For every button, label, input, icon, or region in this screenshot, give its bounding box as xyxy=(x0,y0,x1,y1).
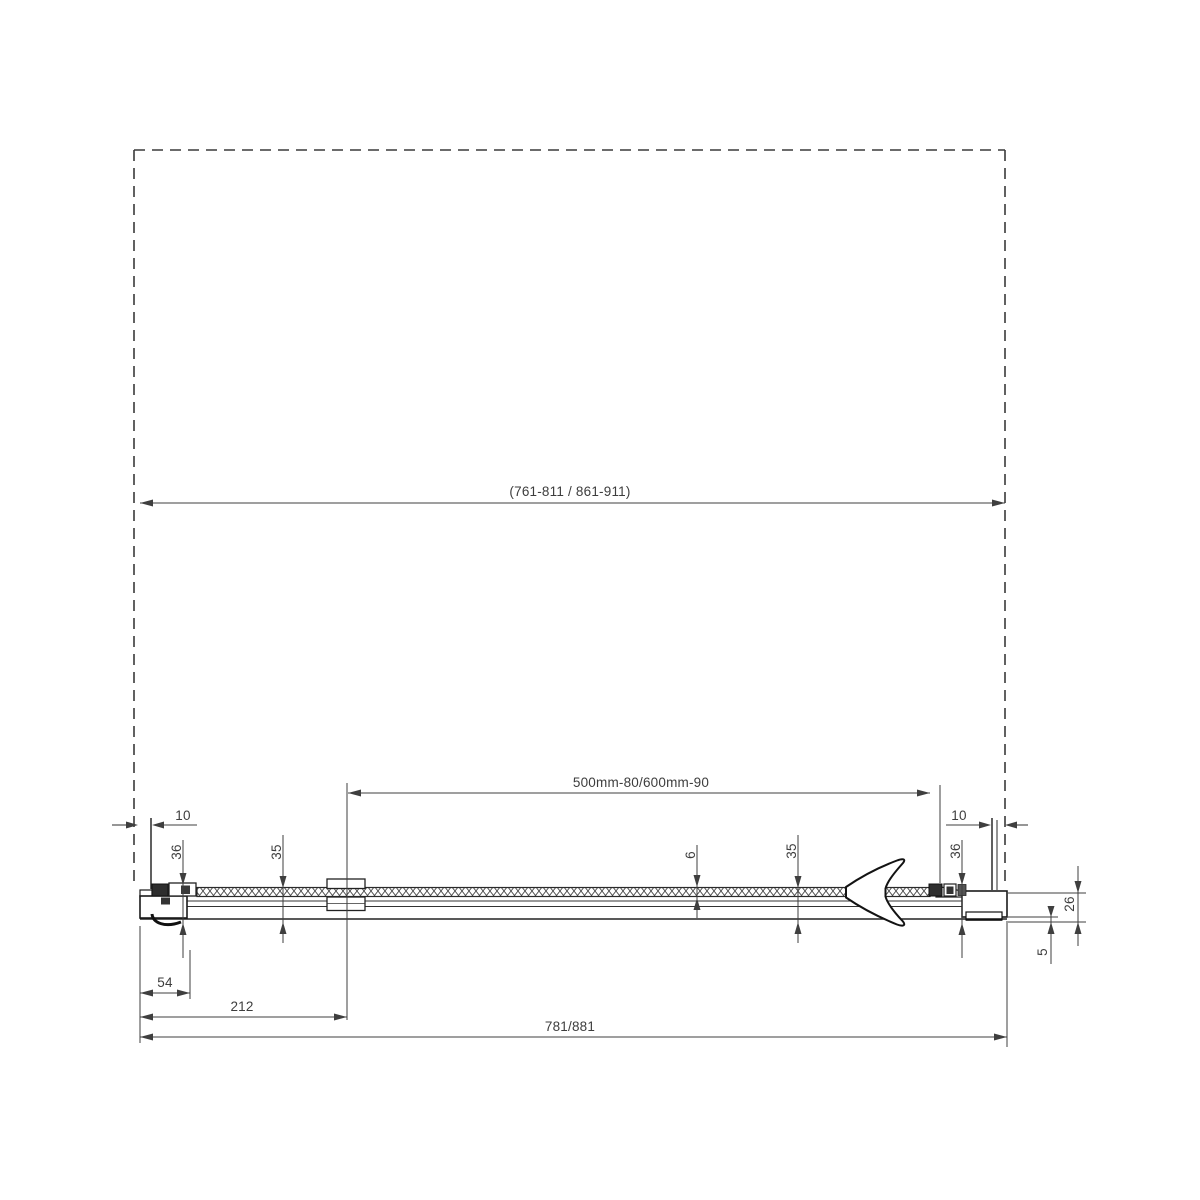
dim-781-881: 781/881 xyxy=(140,921,1007,1047)
door-section-body xyxy=(140,859,1007,925)
arrow-up-icon xyxy=(795,922,802,934)
arrow-left-icon xyxy=(140,1034,153,1041)
arrow-down-icon xyxy=(959,873,966,885)
dim-212: 212 xyxy=(140,999,347,1021)
wall-profile-right xyxy=(929,884,1007,920)
arrow-right-icon xyxy=(994,1034,1007,1041)
dim-glass-thickness-label: 6 xyxy=(683,851,698,859)
arrow-left-icon xyxy=(152,822,164,829)
arrow-right-icon xyxy=(917,790,930,797)
dim-left-gap: 10 xyxy=(112,808,197,829)
arrow-down-icon xyxy=(1048,906,1055,917)
arrow-right-icon xyxy=(334,1014,347,1021)
door-extent-dashed-outline xyxy=(134,150,1005,888)
dim-left-35-label: 35 xyxy=(269,844,284,859)
arrow-right-icon xyxy=(992,500,1005,507)
technical-drawing-page: (761-811 / 861-911) 500mm-80/600mm-90 10… xyxy=(0,0,1200,1200)
left-glass-clamp xyxy=(152,884,168,896)
arrow-up-icon xyxy=(280,922,287,934)
arrow-right-icon xyxy=(979,822,991,829)
dim-left-gap-label: 10 xyxy=(175,808,190,823)
arrow-right-icon xyxy=(177,990,190,997)
dim-right-35-label: 35 xyxy=(784,843,799,858)
dim-glass-width-label: 500mm-80/600mm-90 xyxy=(573,775,709,790)
dim-left-36-label: 36 xyxy=(169,844,184,859)
arrow-up-icon xyxy=(959,923,966,935)
dim-profile-26: 26 xyxy=(1008,866,1086,946)
arrow-down-icon xyxy=(280,876,287,888)
arrow-down-icon xyxy=(694,875,701,887)
arrow-up-icon xyxy=(1048,922,1055,934)
arrow-left-icon xyxy=(348,790,361,797)
arrow-right-icon xyxy=(126,822,138,829)
arrow-down-icon xyxy=(795,876,802,888)
dim-bottom-5-label: 5 xyxy=(1035,948,1050,956)
dim-781-881-label: 781/881 xyxy=(545,1019,595,1034)
dim-right-gap-label: 10 xyxy=(951,808,966,823)
dim-right-36-label: 36 xyxy=(948,843,963,858)
arrow-down-icon xyxy=(1075,881,1082,893)
arrow-up-icon xyxy=(1075,922,1082,934)
arrow-left-icon xyxy=(1005,822,1017,829)
wall-profile-left xyxy=(140,883,196,925)
dim-overall-width-label: (761-811 / 861-911) xyxy=(509,484,630,499)
glass-panel-hatch xyxy=(197,888,930,897)
right-glass-clamp xyxy=(929,884,942,896)
dim-overall-width: (761-811 / 861-911) xyxy=(140,484,1005,507)
dim-right-gap: 10 xyxy=(946,808,1028,829)
arrow-up-icon xyxy=(694,898,701,910)
arrow-left-icon xyxy=(140,500,153,507)
dim-profile-26-label: 26 xyxy=(1062,896,1077,911)
arrow-up-icon xyxy=(180,923,187,935)
arrow-left-icon xyxy=(140,990,153,997)
dim-212-label: 212 xyxy=(230,999,253,1014)
wall-edge-right xyxy=(992,818,997,890)
arrow-left-icon xyxy=(140,1014,153,1021)
shower-door-section-drawing: (761-811 / 861-911) 500mm-80/600mm-90 10… xyxy=(0,0,1200,1200)
dim-bottom-5: 5 xyxy=(1008,906,1058,964)
dim-54-label: 54 xyxy=(157,975,173,990)
